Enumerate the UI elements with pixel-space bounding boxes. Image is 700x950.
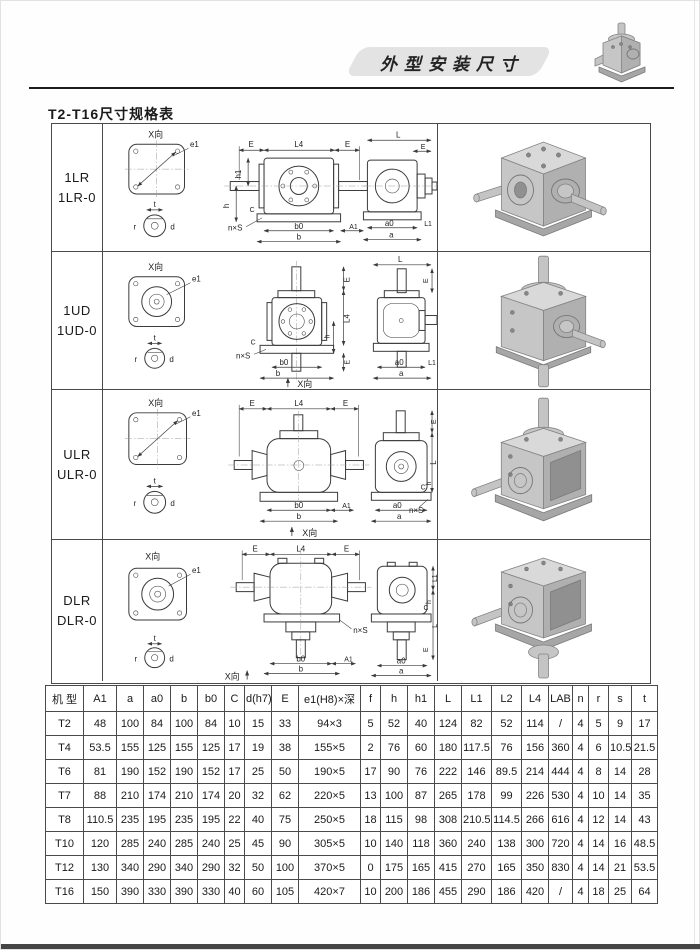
spec-cell: 20 bbox=[225, 784, 245, 808]
spec-col-header: d(h7) bbox=[245, 686, 272, 712]
spec-cell: 10.5 bbox=[609, 736, 632, 760]
spec-cell: 175 bbox=[381, 856, 408, 880]
svg-text:b: b bbox=[276, 369, 281, 378]
spec-cell: 214 bbox=[522, 760, 549, 784]
spec-cell: 117.5 bbox=[462, 736, 492, 760]
spec-cell: 52 bbox=[381, 712, 408, 736]
model-label: ULR bbox=[63, 447, 91, 462]
spec-cell: 14 bbox=[609, 808, 632, 832]
svg-text:n×S: n×S bbox=[353, 626, 367, 635]
svg-text:E: E bbox=[252, 544, 257, 553]
spec-cell: 4 bbox=[573, 808, 589, 832]
spec-cell: 174 bbox=[198, 784, 225, 808]
spec-col-header: E bbox=[272, 686, 299, 712]
svg-text:X向: X向 bbox=[225, 671, 240, 681]
spec-col-header: L bbox=[435, 686, 462, 712]
model-label: 1UD-0 bbox=[57, 323, 97, 338]
svg-text:L: L bbox=[398, 255, 403, 264]
model-label: 1LR-0 bbox=[58, 190, 96, 205]
spec-cell: 114 bbox=[522, 712, 549, 736]
spec-cell: 10 bbox=[361, 832, 381, 856]
spec-cell: 616 bbox=[549, 808, 573, 832]
svg-text:L1: L1 bbox=[424, 221, 432, 228]
catalog-page: { "page": { "banner_title": "外型安装尺寸", "s… bbox=[0, 0, 700, 950]
spec-cell: 124 bbox=[435, 712, 462, 736]
svg-text:E: E bbox=[248, 140, 253, 149]
svg-text:h: h bbox=[222, 204, 231, 208]
spec-cell: 420 bbox=[522, 880, 549, 904]
spec-cell: 4 bbox=[573, 856, 589, 880]
svg-text:n×S: n×S bbox=[236, 351, 250, 360]
drawing-cell-dlr: X向 e1 t r d E L4 E bbox=[103, 540, 438, 681]
spec-cell: 14 bbox=[589, 832, 609, 856]
spec-cell: 17 bbox=[225, 760, 245, 784]
spec-cell: 10 bbox=[361, 880, 381, 904]
svg-text:L4: L4 bbox=[343, 314, 352, 323]
spec-cell: 330 bbox=[198, 880, 225, 904]
model-label: 1LR bbox=[64, 170, 89, 185]
svg-text:d: d bbox=[170, 499, 174, 508]
spec-cell: / bbox=[549, 880, 573, 904]
spec-model-cell: T7 bbox=[46, 784, 84, 808]
model-cell-ulr: ULR ULR-0 bbox=[52, 390, 103, 540]
spec-cell: 5 bbox=[589, 712, 609, 736]
dimension-drawing-table: 1LR 1LR-0 X向 e1 t r d bbox=[51, 123, 651, 684]
spec-cell: 4 bbox=[573, 736, 589, 760]
svg-text:E: E bbox=[249, 399, 254, 408]
spec-cell: 100 bbox=[171, 712, 198, 736]
spec-model-cell: T4 bbox=[46, 736, 84, 760]
svg-text:E: E bbox=[421, 144, 426, 151]
spec-cell: 285 bbox=[117, 832, 144, 856]
page-title: 外型安装尺寸 bbox=[367, 50, 537, 75]
spec-cell: 370×5 bbox=[299, 856, 361, 880]
svg-text:C: C bbox=[424, 605, 429, 612]
svg-text:E: E bbox=[423, 278, 430, 283]
spec-cell: 235 bbox=[171, 808, 198, 832]
spec-cell: 125 bbox=[198, 736, 225, 760]
spec-cell: 180 bbox=[435, 736, 462, 760]
spec-cell: 99 bbox=[492, 784, 522, 808]
svg-text:X向: X向 bbox=[302, 527, 317, 538]
spec-cell: 105 bbox=[272, 880, 299, 904]
spec-col-header: t bbox=[632, 686, 658, 712]
spec-cell: 444 bbox=[549, 760, 573, 784]
spec-cell: 90 bbox=[381, 760, 408, 784]
spec-row: T8110.5235195235195224075250×51811598308… bbox=[46, 808, 658, 832]
spec-cell: 265 bbox=[435, 784, 462, 808]
spec-cell: 16 bbox=[609, 832, 632, 856]
spec-cell: 4 bbox=[573, 832, 589, 856]
spec-cell: 6 bbox=[589, 736, 609, 760]
header-divider bbox=[29, 87, 674, 89]
spec-cell: / bbox=[549, 712, 573, 736]
svg-text:E: E bbox=[345, 360, 352, 365]
spec-cell: 830 bbox=[549, 856, 573, 880]
spec-cell: 50 bbox=[245, 856, 272, 880]
spec-cell: 190×5 bbox=[299, 760, 361, 784]
svg-text:h: h bbox=[426, 481, 433, 485]
svg-text:d: d bbox=[169, 355, 173, 364]
spec-cell: 285 bbox=[171, 832, 198, 856]
spec-cell: 210 bbox=[171, 784, 198, 808]
spec-cell: 155×5 bbox=[299, 736, 361, 760]
spec-cell: 125 bbox=[144, 736, 171, 760]
svg-text:a0: a0 bbox=[385, 219, 394, 228]
spec-cell: 15 bbox=[245, 712, 272, 736]
spec-cell: 52 bbox=[492, 712, 522, 736]
spec-cell: 195 bbox=[198, 808, 225, 832]
spec-cell: 14 bbox=[609, 760, 632, 784]
spec-cell: 84 bbox=[144, 712, 171, 736]
spec-cell: 152 bbox=[198, 760, 225, 784]
spec-col-header: C bbox=[225, 686, 245, 712]
spec-cell: 340 bbox=[171, 856, 198, 880]
svg-text:b0: b0 bbox=[294, 501, 303, 510]
svg-text:L1: L1 bbox=[432, 574, 437, 582]
svg-text:t: t bbox=[154, 476, 157, 485]
spec-cell: 98 bbox=[408, 808, 435, 832]
spec-cell: 240 bbox=[144, 832, 171, 856]
svg-text:b: b bbox=[299, 665, 304, 674]
page-edge-line bbox=[694, 1, 695, 949]
spec-cell: 110.5 bbox=[84, 808, 117, 832]
spec-cell: 60 bbox=[408, 736, 435, 760]
spec-row: T121303402903402903250100370×50175165415… bbox=[46, 856, 658, 880]
spec-cell: 40 bbox=[225, 880, 245, 904]
spec-cell: 226 bbox=[522, 784, 549, 808]
spec-cell: 89.5 bbox=[492, 760, 522, 784]
spec-col-header: LAB bbox=[549, 686, 573, 712]
spec-cell: 28 bbox=[632, 760, 658, 784]
svg-text:e1: e1 bbox=[190, 140, 199, 149]
spec-cell: 17 bbox=[361, 760, 381, 784]
spec-cell: 174 bbox=[144, 784, 171, 808]
svg-text:A1: A1 bbox=[344, 657, 353, 664]
spec-col-header: f bbox=[361, 686, 381, 712]
technical-drawing-dlr: X向 e1 t r d E L4 E bbox=[103, 540, 437, 681]
spec-model-cell: T12 bbox=[46, 856, 84, 880]
spec-col-header: L2 bbox=[492, 686, 522, 712]
spec-cell: 48.5 bbox=[632, 832, 658, 856]
spec-cell: 235 bbox=[117, 808, 144, 832]
spec-col-header: 机 型 bbox=[46, 686, 84, 712]
svg-text:L: L bbox=[429, 460, 437, 465]
spec-cell: 32 bbox=[245, 784, 272, 808]
svg-text:r: r bbox=[134, 355, 137, 364]
spec-row: T161503903303903304060105420×71020018645… bbox=[46, 880, 658, 904]
spec-col-header: n bbox=[573, 686, 589, 712]
spec-cell: 200 bbox=[381, 880, 408, 904]
model-cell-1lr: 1LR 1LR-0 bbox=[52, 124, 103, 252]
spec-col-header: s bbox=[609, 686, 632, 712]
svg-text:A1: A1 bbox=[342, 503, 351, 510]
spec-col-header: a bbox=[117, 686, 144, 712]
svg-text:C: C bbox=[421, 484, 426, 491]
svg-text:L: L bbox=[396, 130, 401, 139]
spec-cell: 152 bbox=[144, 760, 171, 784]
svg-text:b0: b0 bbox=[294, 222, 303, 231]
spec-col-header: L4 bbox=[522, 686, 549, 712]
spec-cell: 270 bbox=[462, 856, 492, 880]
spec-cell: 22 bbox=[225, 808, 245, 832]
spec-col-header: e1(H8)×深 bbox=[299, 686, 361, 712]
header-gearbox-photo bbox=[593, 21, 651, 90]
spec-cell: 150 bbox=[84, 880, 117, 904]
spec-cell: 290 bbox=[462, 880, 492, 904]
svg-text:X向: X向 bbox=[145, 550, 160, 561]
spec-cell: 18 bbox=[361, 808, 381, 832]
gearbox-photo-1ud bbox=[438, 252, 650, 389]
spec-cell: 115 bbox=[381, 808, 408, 832]
spec-model-cell: T10 bbox=[46, 832, 84, 856]
spec-cell: 12 bbox=[589, 808, 609, 832]
svg-text:L4: L4 bbox=[294, 399, 303, 408]
spec-cell: 290 bbox=[144, 856, 171, 880]
svg-text:X向: X向 bbox=[148, 128, 163, 139]
spec-cell: 82 bbox=[462, 712, 492, 736]
spec-model-cell: T8 bbox=[46, 808, 84, 832]
svg-text:e1: e1 bbox=[192, 409, 201, 418]
spec-cell: 720 bbox=[549, 832, 573, 856]
spec-cell: 13 bbox=[361, 784, 381, 808]
model-cell-dlr: DLR DLR-0 bbox=[52, 540, 103, 681]
svg-text:L: L bbox=[432, 624, 437, 628]
spec-cell: 178 bbox=[462, 784, 492, 808]
model-label: DLR bbox=[63, 593, 91, 608]
svg-text:t: t bbox=[154, 333, 157, 342]
spec-cell: 350 bbox=[522, 856, 549, 880]
svg-text:X向: X向 bbox=[148, 397, 163, 408]
photo-cell-ulr bbox=[438, 390, 650, 540]
spec-cell: 240 bbox=[198, 832, 225, 856]
spec-row: T10120285240285240254590305×510140118360… bbox=[46, 832, 658, 856]
svg-text:d: d bbox=[170, 223, 174, 232]
svg-text:X向: X向 bbox=[297, 378, 312, 389]
spec-cell: 0 bbox=[361, 856, 381, 880]
spec-cell: 305×5 bbox=[299, 832, 361, 856]
svg-text:E: E bbox=[343, 399, 348, 408]
svg-text:a: a bbox=[397, 512, 402, 521]
spec-cell: 186 bbox=[408, 880, 435, 904]
spec-model-cell: T16 bbox=[46, 880, 84, 904]
svg-text:t: t bbox=[154, 200, 157, 209]
drawing-cell-ulr: X向 e1 t r d E L4 E bbox=[103, 390, 438, 540]
spec-cell: 340 bbox=[117, 856, 144, 880]
svg-text:r: r bbox=[134, 655, 137, 664]
spec-cell: 45 bbox=[245, 832, 272, 856]
spec-col-header: A1 bbox=[84, 686, 117, 712]
spec-cell: 266 bbox=[522, 808, 549, 832]
svg-text:L1: L1 bbox=[428, 360, 436, 367]
spec-cell: 290 bbox=[198, 856, 225, 880]
model-label: ULR-0 bbox=[57, 467, 97, 482]
spec-cell: 88 bbox=[84, 784, 117, 808]
spec-cell: 118 bbox=[408, 832, 435, 856]
svg-text:L4: L4 bbox=[294, 140, 303, 149]
spec-cell: 76 bbox=[492, 736, 522, 760]
spec-cell: 33 bbox=[272, 712, 299, 736]
spec-row: T248100841008410153394×3552401248252114/… bbox=[46, 712, 658, 736]
spec-cell: 48 bbox=[84, 712, 117, 736]
spec-cell: 308 bbox=[435, 808, 462, 832]
spec-cell: 146 bbox=[462, 760, 492, 784]
spec-cell: 222 bbox=[435, 760, 462, 784]
spec-table-body: T248100841008410153394×3552401248252114/… bbox=[46, 712, 658, 904]
spec-cell: 100 bbox=[117, 712, 144, 736]
technical-drawing-ulr: X向 e1 t r d E L4 E bbox=[103, 390, 437, 539]
gearbox-photo-ulr bbox=[438, 390, 650, 539]
svg-text:X向: X向 bbox=[148, 261, 163, 272]
spec-cell: 87 bbox=[408, 784, 435, 808]
spec-cell: 75 bbox=[272, 808, 299, 832]
svg-text:C: C bbox=[250, 207, 255, 214]
spec-cell: 240 bbox=[462, 832, 492, 856]
svg-text:n×S: n×S bbox=[409, 506, 423, 515]
svg-text:E: E bbox=[345, 140, 350, 149]
spec-cell: 14 bbox=[609, 784, 632, 808]
spec-cell: 415 bbox=[435, 856, 462, 880]
spec-model-cell: T6 bbox=[46, 760, 84, 784]
svg-text:E: E bbox=[423, 647, 430, 652]
svg-text:a0: a0 bbox=[393, 501, 402, 510]
spec-cell: 165 bbox=[492, 856, 522, 880]
spec-cell: 140 bbox=[381, 832, 408, 856]
spec-cell: 25 bbox=[225, 832, 245, 856]
photo-cell-dlr bbox=[438, 540, 650, 681]
spec-col-header: r bbox=[589, 686, 609, 712]
spec-cell: 165 bbox=[408, 856, 435, 880]
svg-text:E: E bbox=[344, 544, 349, 553]
spec-cell: 195 bbox=[144, 808, 171, 832]
spec-cell: 18 bbox=[589, 880, 609, 904]
drawing-cell-1ud: X向 e1 t r d bbox=[103, 252, 438, 390]
spec-cell: 32 bbox=[225, 856, 245, 880]
svg-text:e1: e1 bbox=[192, 566, 201, 575]
spec-cell: 53.5 bbox=[632, 856, 658, 880]
spec-cell: 156 bbox=[522, 736, 549, 760]
svg-text:r: r bbox=[133, 223, 136, 232]
spec-cell: 21.5 bbox=[632, 736, 658, 760]
spec-cell: 94×3 bbox=[299, 712, 361, 736]
spec-cell: 120 bbox=[84, 832, 117, 856]
spec-cell: 21 bbox=[609, 856, 632, 880]
spec-cell: 330 bbox=[144, 880, 171, 904]
spec-cell: 100 bbox=[272, 856, 299, 880]
svg-text:b0: b0 bbox=[296, 655, 305, 664]
spec-cell: 17 bbox=[632, 712, 658, 736]
spec-cell: 420×7 bbox=[299, 880, 361, 904]
spec-cell: 130 bbox=[84, 856, 117, 880]
spec-cell: 4 bbox=[573, 712, 589, 736]
svg-text:L4: L4 bbox=[296, 544, 305, 553]
spec-cell: 64 bbox=[632, 880, 658, 904]
svg-text:E: E bbox=[431, 419, 437, 424]
spec-row: T788210174210174203262220×51310087265178… bbox=[46, 784, 658, 808]
svg-text:E: E bbox=[343, 277, 352, 282]
spec-cell: 81 bbox=[84, 760, 117, 784]
spec-cell: 25 bbox=[245, 760, 272, 784]
section-title: T2-T16尺寸规格表 bbox=[48, 104, 174, 124]
spec-cell: 300 bbox=[522, 832, 549, 856]
spec-cell: 250×5 bbox=[299, 808, 361, 832]
spec-cell: 90 bbox=[272, 832, 299, 856]
spec-cell: 190 bbox=[117, 760, 144, 784]
spec-cell: 155 bbox=[117, 736, 144, 760]
svg-text:b: b bbox=[297, 512, 302, 521]
spec-cell: 76 bbox=[381, 736, 408, 760]
technical-drawing-1ud: X向 e1 t r d bbox=[103, 252, 437, 389]
svg-text:h: h bbox=[325, 334, 332, 338]
spec-cell: 4 bbox=[573, 784, 589, 808]
spec-cell: 186 bbox=[492, 880, 522, 904]
model-label: DLR-0 bbox=[57, 613, 97, 628]
drawing-cell-1lr: X向 e1 t r d E L4 E bbox=[103, 124, 438, 252]
svg-text:r: r bbox=[133, 499, 136, 508]
page-bottom-bar bbox=[1, 944, 700, 949]
spec-col-header: a0 bbox=[144, 686, 171, 712]
gearbox-photo-dlr bbox=[438, 540, 650, 681]
spec-table-head: 机 型A1aa0bb0Cd(h7)Ee1(H8)×深fhh1LL1L2L4LAB… bbox=[46, 686, 658, 712]
spec-col-header: b bbox=[171, 686, 198, 712]
gearbox-photo-1lr bbox=[438, 124, 650, 251]
svg-text:A1: A1 bbox=[349, 224, 358, 231]
spec-cell: 455 bbox=[435, 880, 462, 904]
spec-cell: 220×5 bbox=[299, 784, 361, 808]
spec-cell: 19 bbox=[245, 736, 272, 760]
spec-cell: 155 bbox=[171, 736, 198, 760]
svg-text:b: b bbox=[297, 233, 302, 242]
spec-cell: 35 bbox=[632, 784, 658, 808]
svg-text:a: a bbox=[399, 369, 404, 378]
spec-cell: 14 bbox=[589, 856, 609, 880]
spec-cell: 390 bbox=[117, 880, 144, 904]
spec-cell: 10 bbox=[225, 712, 245, 736]
svg-text:h1: h1 bbox=[234, 169, 243, 178]
spec-cell: 100 bbox=[381, 784, 408, 808]
model-label: 1UD bbox=[63, 303, 91, 318]
spec-cell: 4 bbox=[573, 880, 589, 904]
spec-cell: 84 bbox=[198, 712, 225, 736]
spec-row: T453.5155125155125171938155×527660180117… bbox=[46, 736, 658, 760]
spec-cell: 9 bbox=[609, 712, 632, 736]
spec-cell: 210 bbox=[117, 784, 144, 808]
spec-cell: 53.5 bbox=[84, 736, 117, 760]
spec-cell: 40 bbox=[408, 712, 435, 736]
spec-cell: 360 bbox=[435, 832, 462, 856]
spec-cell: 4 bbox=[573, 760, 589, 784]
spec-cell: 114.5 bbox=[492, 808, 522, 832]
spec-cell: 25 bbox=[609, 880, 632, 904]
spec-cell: 210.5 bbox=[462, 808, 492, 832]
model-cell-1ud: 1UD 1UD-0 bbox=[52, 252, 103, 390]
spec-cell: 8 bbox=[589, 760, 609, 784]
spec-cell: 60 bbox=[245, 880, 272, 904]
spec-cell: 530 bbox=[549, 784, 573, 808]
spec-col-header: L1 bbox=[462, 686, 492, 712]
photo-cell-1lr bbox=[438, 124, 650, 252]
spec-cell: 2 bbox=[361, 736, 381, 760]
spec-cell: 50 bbox=[272, 760, 299, 784]
spec-cell: 43 bbox=[632, 808, 658, 832]
spec-cell: 17 bbox=[225, 736, 245, 760]
svg-text:t: t bbox=[154, 634, 157, 643]
spec-cell: 76 bbox=[408, 760, 435, 784]
spec-cell: 390 bbox=[171, 880, 198, 904]
spec-table: 机 型A1aa0bb0Cd(h7)Ee1(H8)×深fhh1LL1L2L4LAB… bbox=[45, 685, 658, 904]
svg-text:d: d bbox=[169, 655, 173, 664]
spec-row: T681190152190152172550190×51790762221468… bbox=[46, 760, 658, 784]
